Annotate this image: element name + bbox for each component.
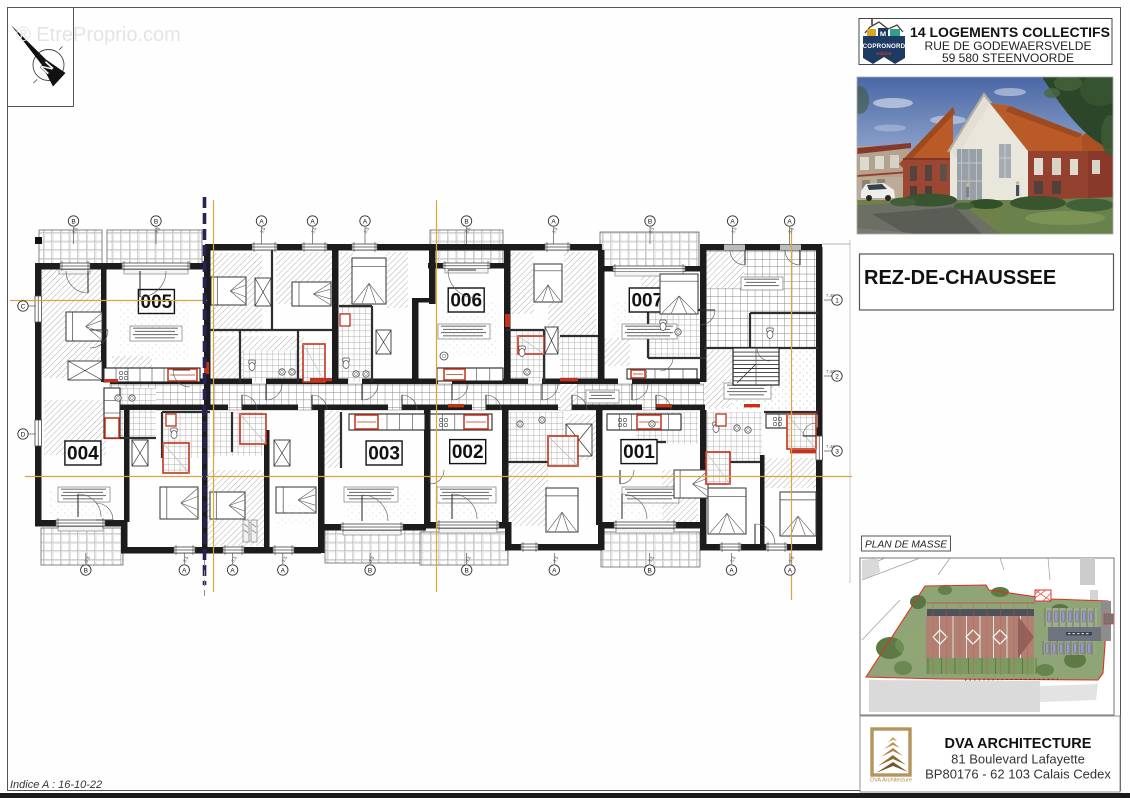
svg-text:59 580 STEENVOORDE: 59 580 STEENVOORDE: [942, 51, 1074, 65]
svg-text:A: A: [230, 567, 235, 574]
svg-text:A: A: [787, 218, 792, 225]
svg-text:A: A: [182, 567, 187, 574]
svg-text:REZ-DE-CHAUSSEE: REZ-DE-CHAUSSEE: [864, 267, 1056, 289]
svg-text:7,40: 7,40: [826, 444, 835, 449]
svg-text:COPRONORD: COPRONORD: [863, 43, 906, 50]
svg-text:A: A: [729, 567, 734, 574]
svg-text:A: A: [730, 218, 735, 225]
svg-text:A: A: [310, 218, 315, 225]
svg-text:3: 3: [835, 448, 839, 455]
svg-text:C: C: [21, 303, 26, 310]
svg-text:B: B: [71, 218, 75, 225]
svg-text:1: 1: [835, 297, 839, 304]
svg-text:B: B: [464, 218, 468, 225]
svg-text:7,40: 7,40: [826, 293, 835, 298]
svg-text:14 LOGEMENTS COLLECTIFS: 14 LOGEMENTS COLLECTIFS: [910, 24, 1110, 40]
svg-text:2: 2: [835, 373, 839, 380]
svg-text:Indice A : 16-10-22: Indice A : 16-10-22: [10, 779, 102, 791]
svg-text:BP80176 - 62 103 Calais Cedex: BP80176 - 62 103 Calais Cedex: [925, 767, 1111, 782]
svg-text:002: 002: [452, 442, 484, 463]
svg-text:B: B: [465, 567, 469, 574]
svg-text:A: A: [788, 567, 793, 574]
svg-text:A: A: [281, 567, 286, 574]
svg-text:A: A: [259, 218, 264, 225]
svg-text:Habitat: Habitat: [877, 51, 892, 56]
svg-text:B: B: [154, 218, 158, 225]
svg-text:A: A: [552, 567, 557, 574]
svg-text:004: 004: [67, 444, 99, 465]
svg-text:DVA ARCHITECTURE: DVA ARCHITECTURE: [945, 736, 1092, 752]
svg-text:81 Boulevard Lafayette: 81 Boulevard Lafayette: [951, 752, 1085, 767]
svg-text:DVA Architecture: DVA Architecture: [870, 778, 912, 784]
svg-text:001: 001: [623, 442, 655, 463]
svg-text:B: B: [368, 567, 372, 574]
svg-text:A: A: [363, 218, 368, 225]
svg-text:B: B: [648, 567, 652, 574]
svg-text:D: D: [21, 431, 26, 438]
svg-text:PLAN DE MASSE: PLAN DE MASSE: [865, 540, 947, 551]
svg-text:7,40: 7,40: [826, 369, 835, 374]
svg-text:A: A: [551, 218, 556, 225]
svg-text:003: 003: [368, 444, 400, 465]
svg-text:® EtreProprio.com: ® EtreProprio.com: [16, 24, 181, 46]
svg-text:B: B: [648, 218, 652, 225]
svg-text:B: B: [84, 567, 88, 574]
